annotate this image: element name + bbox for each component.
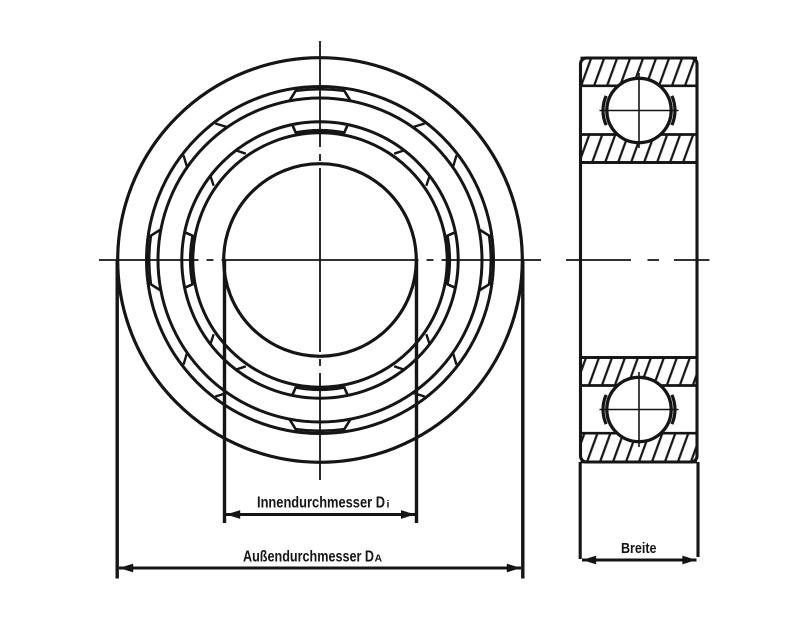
svg-text:Außendurchmesser D: Außendurchmesser D [243, 549, 374, 566]
svg-text:Breite: Breite [621, 541, 657, 557]
svg-text:i: i [387, 499, 390, 511]
svg-text:A: A [375, 553, 383, 565]
svg-text:Innendurchmesser D: Innendurchmesser D [257, 495, 385, 512]
